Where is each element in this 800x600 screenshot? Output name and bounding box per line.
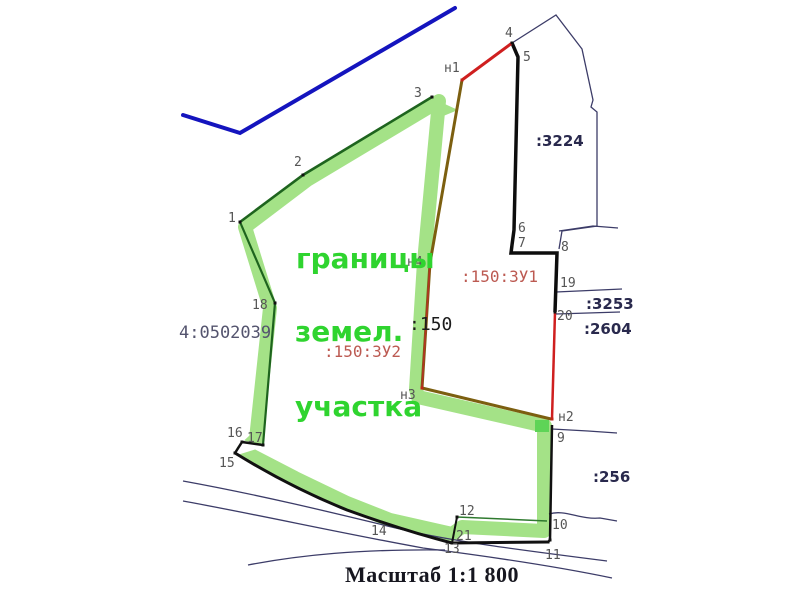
point-number-label: 10 — [552, 518, 568, 533]
point-number-label: 15 — [219, 456, 235, 471]
parcel-number-label: :150:ЗУ1 — [461, 267, 538, 286]
parcel-number-label: :150 — [409, 314, 452, 335]
point-number-label: 1 — [228, 211, 236, 226]
cadastral-map: 123456781920910111221131415161718н1н2н3н… — [0, 0, 800, 600]
point-number-label: 5 — [523, 50, 531, 65]
parcel-number-label: :256 — [593, 468, 630, 486]
parcel-number-label: :3224 — [536, 132, 584, 150]
point-number-label: н2 — [558, 410, 574, 425]
new-vertex-dot — [461, 79, 464, 82]
point-number-label: 17 — [247, 431, 263, 446]
band-corner-patch — [535, 420, 549, 432]
point-number-label: 8 — [561, 240, 569, 255]
point-number-label: 18 — [252, 298, 268, 313]
vertex-dot — [431, 96, 434, 99]
point-number-label: н1 — [444, 61, 460, 76]
vertex-dot — [517, 56, 520, 59]
vertex-dot — [274, 302, 277, 305]
boundary-red-20-n2 — [552, 312, 555, 419]
vertex-dot — [511, 244, 514, 247]
point-number-label: 20 — [557, 309, 573, 324]
point-number-label: 13 — [444, 542, 460, 557]
annotation-line: границы — [296, 242, 435, 275]
point-number-label: 14 — [371, 524, 387, 539]
point-number-label: 11 — [545, 548, 561, 563]
new-vertex-dot — [551, 418, 554, 421]
vertex-dot — [511, 42, 514, 45]
point-number-label: 9 — [557, 431, 565, 446]
point-number-label: 4 — [505, 26, 513, 41]
vertex-dot — [547, 541, 550, 544]
parcel-number-label: :2604 — [584, 320, 632, 338]
boundary-red-n1-4 — [462, 43, 512, 80]
point-number-label: 7 — [518, 236, 526, 251]
scale-label: Масштаб 1:1 800 — [345, 562, 585, 588]
vertex-dot — [556, 252, 559, 255]
point-number-label: 2 — [294, 155, 302, 170]
annotation-line: участка — [295, 390, 422, 423]
vertex-dot — [513, 229, 516, 232]
vertex-dot — [239, 221, 242, 224]
point-number-label: 16 — [227, 426, 243, 441]
cadastral-map-canvas: 123456781920910111221131415161718н1н2н3н… — [0, 0, 800, 600]
annotation-line: земел. — [295, 315, 403, 348]
point-number-label: 6 — [518, 221, 526, 236]
parcel-number-label: 4:0502039 — [179, 323, 271, 343]
parcel-line-right-8 — [559, 226, 618, 231]
parcel-number-label: :3253 — [586, 295, 634, 313]
vertex-dot — [302, 174, 305, 177]
point-number-label: 19 — [560, 276, 576, 291]
point-number-label: 3 — [414, 86, 422, 101]
vertex-dot — [234, 452, 237, 455]
point-number-label: 12 — [459, 504, 475, 519]
